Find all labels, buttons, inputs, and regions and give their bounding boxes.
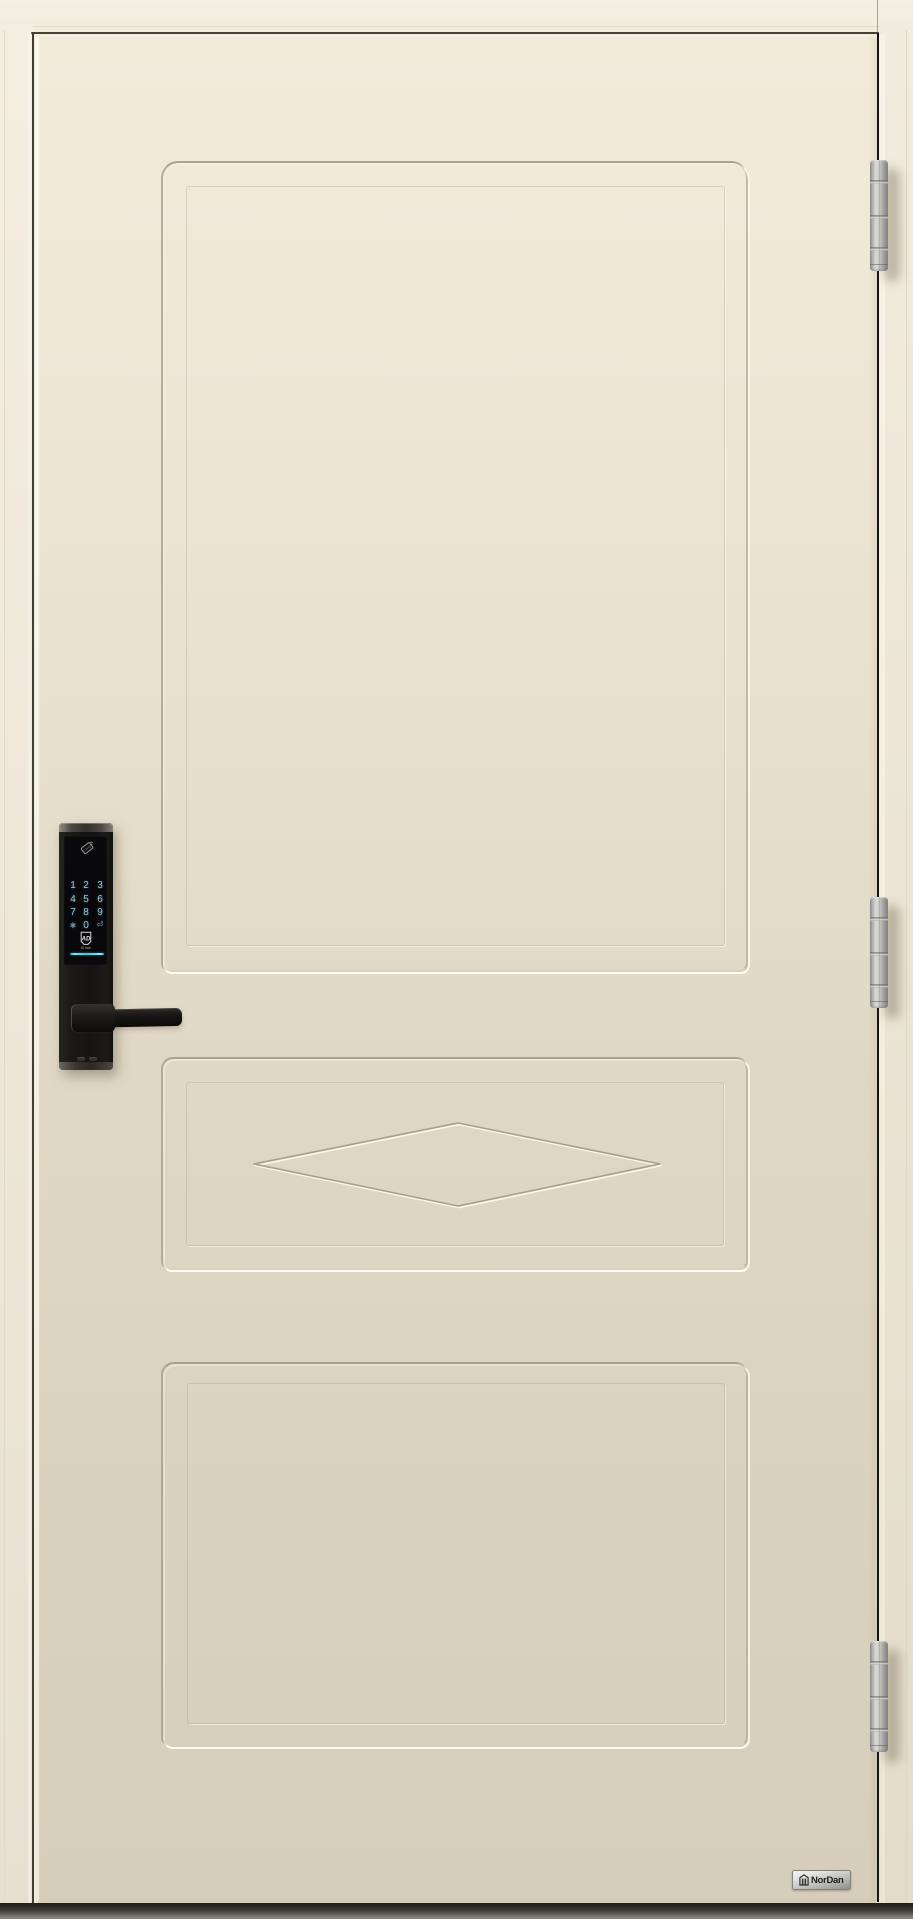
- svg-text:ID lock: ID lock: [81, 946, 91, 950]
- svg-text:AD: AD: [81, 936, 91, 942]
